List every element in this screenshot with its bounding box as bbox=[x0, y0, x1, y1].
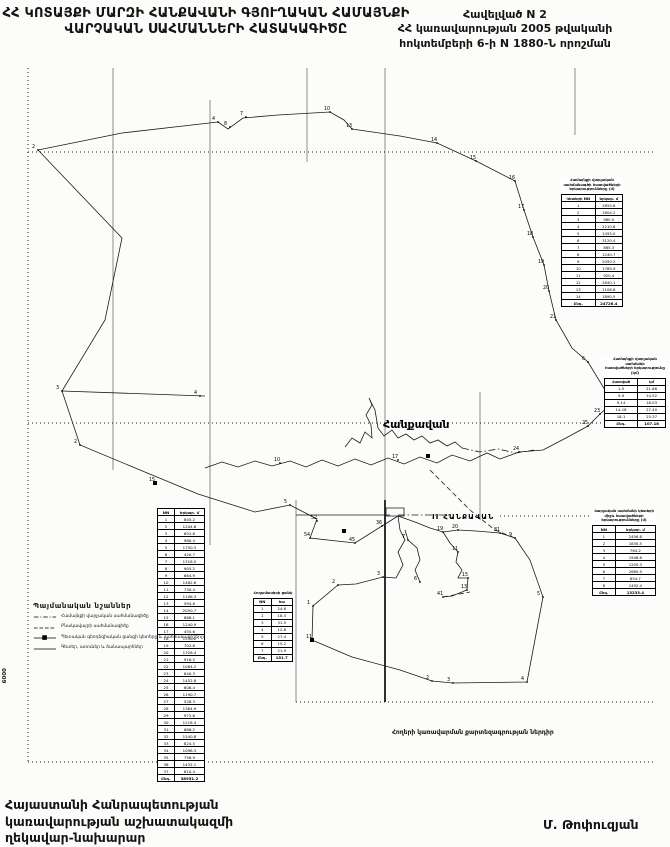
svg-text:10: 10 bbox=[274, 457, 280, 463]
table-row: 3764.2 bbox=[593, 547, 656, 554]
map-canvas: 2487101314151617181920216222325243421555… bbox=[0, 0, 670, 846]
table-row: 12456.8 bbox=[593, 533, 656, 540]
svg-text:20: 20 bbox=[543, 285, 549, 291]
table-row: 42210.8 bbox=[562, 223, 623, 230]
svg-text:23: 23 bbox=[594, 408, 600, 414]
svg-text:15: 15 bbox=[470, 155, 476, 161]
parcels-table: Հողամասերի ցանկNNհա124.6218.3331.5412.85… bbox=[253, 591, 293, 662]
table-caption: Վարչական սահմանի կետերիմիջև հատվածներիեր… bbox=[592, 509, 656, 523]
table-row: 281364.9 bbox=[158, 705, 205, 712]
table-caption: Հողամասերի ցանկ bbox=[253, 591, 293, 596]
table-row: 33824.5 bbox=[158, 740, 205, 747]
table-row: 1-521.86 bbox=[605, 385, 666, 392]
footer-line-1: Հայաստանի Հանրապետության bbox=[5, 797, 233, 814]
svg-text:13: 13 bbox=[461, 584, 467, 590]
svg-text:Հանքավան: Հանքավան bbox=[383, 418, 449, 431]
svg-text:4: 4 bbox=[194, 390, 197, 396]
table-row: 8905.2 bbox=[158, 565, 205, 572]
svg-text:81: 81 bbox=[494, 527, 500, 533]
table-total-row: Ընդ.107.18 bbox=[605, 420, 666, 427]
table-row: 21204.6 bbox=[158, 523, 205, 530]
svg-text:2: 2 bbox=[74, 439, 77, 445]
table-row: 11920.4 bbox=[562, 272, 623, 279]
svg-text:17: 17 bbox=[392, 454, 398, 460]
table-row: 92050.2 bbox=[562, 258, 623, 265]
table-row: 3652.8 bbox=[158, 530, 205, 537]
table-row: 122640.1 bbox=[562, 279, 623, 286]
svg-text:54: 54 bbox=[304, 532, 310, 538]
table-row: 221084.2 bbox=[158, 663, 205, 670]
table-row: 721.9 bbox=[254, 647, 293, 654]
svg-text:II ՀԱՆՔԱՎԱՆ: II ՀԱՆՔԱՎԱՆ bbox=[432, 513, 494, 521]
svg-text:17: 17 bbox=[518, 204, 524, 210]
legend-title: Պայմանական նշաններ bbox=[33, 602, 215, 610]
legend-symbol-icon bbox=[33, 624, 57, 632]
svg-text:24: 24 bbox=[513, 446, 519, 452]
table-row: 101785.9 bbox=[562, 265, 623, 272]
table-row: 261190.7 bbox=[158, 691, 205, 698]
table-row: 1845.2 bbox=[158, 516, 205, 523]
svg-text:1: 1 bbox=[307, 600, 310, 606]
svg-text:15: 15 bbox=[462, 572, 468, 578]
table-row: 21916.5 bbox=[158, 656, 205, 663]
table-row: 14-1827.40 bbox=[605, 406, 666, 413]
svg-text:20: 20 bbox=[452, 524, 458, 530]
table-row: 23640.3 bbox=[158, 670, 205, 677]
svg-text:4: 4 bbox=[212, 116, 215, 122]
svg-text:7: 7 bbox=[402, 534, 405, 540]
table-row: 341096.3 bbox=[158, 747, 205, 754]
table-row: 21604.2 bbox=[562, 209, 623, 216]
svg-text:16: 16 bbox=[509, 175, 515, 181]
svg-text:25: 25 bbox=[582, 420, 588, 426]
table-row: 31686.2 bbox=[158, 726, 205, 733]
legend: Պայմանական նշաններ Համայնքի վարչական սահ… bbox=[33, 602, 215, 655]
svg-text:6: 6 bbox=[414, 576, 417, 582]
table-row: 71318.5 bbox=[158, 558, 205, 565]
table-total-row: Ընդ.151.7 bbox=[254, 654, 293, 661]
legend-symbol-icon bbox=[33, 645, 57, 653]
legend-item: Պետական գեոդեզիական ցանցի կետերը և սահմա… bbox=[33, 634, 215, 642]
table-row: 51750.3 bbox=[158, 544, 205, 551]
svg-text:19: 19 bbox=[538, 259, 544, 265]
table-caption: Համայնքի վարչականսահմանագծի հատվածներիեր… bbox=[561, 178, 623, 192]
svg-text:41: 41 bbox=[437, 591, 443, 597]
footer-official-title: Հայաստանի Հանրապետության կառավարության ա… bbox=[5, 797, 233, 847]
svg-text:45: 45 bbox=[349, 537, 355, 543]
scale-label: 6000 bbox=[2, 668, 8, 683]
svg-text:3: 3 bbox=[56, 385, 59, 391]
table-row: 9664.9 bbox=[158, 572, 205, 579]
svg-text:8: 8 bbox=[224, 121, 227, 127]
table-row: 51455.0 bbox=[562, 230, 623, 237]
svg-text:6: 6 bbox=[582, 356, 585, 362]
table-row: 35758.9 bbox=[158, 754, 205, 761]
legend-symbol-icon bbox=[33, 634, 57, 642]
table-row: 18-125.37 bbox=[605, 413, 666, 420]
svg-text:13: 13 bbox=[346, 123, 352, 129]
table-total-row: Ընդ.24726.4 bbox=[562, 300, 623, 307]
table-row: 301218.4 bbox=[158, 719, 205, 726]
legend-item: Համայնքի վարչական սահմանագիծը bbox=[33, 613, 215, 621]
table-row: 27528.3 bbox=[158, 698, 205, 705]
table-row: 7854.7 bbox=[593, 575, 656, 582]
boundary-lengths-table: Համայնքի վարչականսահմանագծի հատվածներիեր… bbox=[561, 178, 623, 307]
table-row: 37610.4 bbox=[158, 768, 205, 775]
table-row: 124.6 bbox=[254, 605, 293, 612]
table-row: 615.2 bbox=[254, 640, 293, 647]
svg-text:5: 5 bbox=[537, 591, 540, 597]
legend-symbol-icon bbox=[33, 613, 57, 621]
svg-text:4: 4 bbox=[521, 676, 524, 682]
svg-text:52: 52 bbox=[311, 515, 317, 521]
svg-text:11: 11 bbox=[452, 546, 458, 552]
table-total-row: Ընդ.13233.4 bbox=[593, 589, 656, 596]
table-row: 51205.3 bbox=[593, 561, 656, 568]
table-row: 62680.9 bbox=[593, 568, 656, 575]
table-row: 321540.8 bbox=[158, 733, 205, 740]
segment-lengths-table: Համայնքի վարչական սահմանիհատվածների երկա… bbox=[604, 357, 666, 428]
svg-text:10: 10 bbox=[324, 106, 330, 112]
svg-text:2: 2 bbox=[32, 144, 35, 150]
boundary-points-table: Վարչական սահմանի կետերիմիջև հատվածներիեր… bbox=[592, 509, 656, 596]
table-row: 218.3 bbox=[254, 612, 293, 619]
table-row: 29972.6 bbox=[158, 712, 205, 719]
svg-text:19: 19 bbox=[437, 526, 443, 532]
svg-text:18: 18 bbox=[527, 231, 533, 237]
svg-text:3: 3 bbox=[377, 571, 380, 577]
data-table: Հատվածկմ1-521.865-914.529-1418.0314-1827… bbox=[604, 378, 666, 428]
table-row: 101482.6 bbox=[158, 579, 205, 586]
table-row: 41948.6 bbox=[593, 554, 656, 561]
table-row: 25806.4 bbox=[158, 684, 205, 691]
table-row: 412.8 bbox=[254, 626, 293, 633]
legend-item: Գետեր, առուներ և ճանապարհներ bbox=[33, 645, 215, 653]
legend-items: Համայնքի վարչական սահմանագիծըԲնակավայրի … bbox=[33, 613, 215, 653]
footer-line-2: կառավարության աշխատակազմի bbox=[5, 814, 233, 831]
table-row: 81492.4 bbox=[593, 582, 656, 589]
svg-text:5: 5 bbox=[284, 499, 287, 505]
table-row: 331.5 bbox=[254, 619, 293, 626]
table-row: 7865.3 bbox=[562, 244, 623, 251]
table-row: 4980.4 bbox=[158, 537, 205, 544]
svg-text:2: 2 bbox=[426, 675, 429, 681]
table-row: 81240.7 bbox=[562, 251, 623, 258]
table-total-row: Ընդ.38951.2 bbox=[158, 775, 205, 782]
svg-text:2: 2 bbox=[332, 579, 335, 585]
table-row: 9-1418.03 bbox=[605, 399, 666, 406]
svg-text:7: 7 bbox=[240, 111, 243, 117]
svg-text:14: 14 bbox=[431, 137, 437, 143]
table-row: 5-914.52 bbox=[605, 392, 666, 399]
table-row: 131106.8 bbox=[562, 286, 623, 293]
legend-item: Բնակավայրի սահմանագիծը bbox=[33, 624, 215, 632]
table-caption: Համայնքի վարչական սահմանիհատվածների երկա… bbox=[604, 357, 666, 376]
table-row: 241452.8 bbox=[158, 677, 205, 684]
table-row: 6420.7 bbox=[158, 551, 205, 558]
table-row: 121106.3 bbox=[158, 593, 205, 600]
table-row: 3980.5 bbox=[562, 216, 623, 223]
data-table: Կետերի NNԵրկար. մ12855.621604.23980.5422… bbox=[561, 194, 623, 307]
svg-text:9: 9 bbox=[509, 532, 512, 538]
table-row: 361432.1 bbox=[158, 761, 205, 768]
map-note: Հողերի կառավարման քարտեզագրության ներդիր bbox=[392, 729, 554, 736]
table-row: 141890.5 bbox=[562, 293, 623, 300]
table-row: 527.4 bbox=[254, 633, 293, 640]
svg-text:36: 36 bbox=[376, 520, 382, 526]
data-table: NNհա124.6218.3331.5412.8527.4615.2721.9Ը… bbox=[253, 598, 293, 662]
footer-line-3: ղեկավար-նախարար bbox=[5, 830, 233, 847]
table-row: 63120.4 bbox=[562, 237, 623, 244]
table-row: 11730.4 bbox=[158, 586, 205, 593]
table-row: 21830.5 bbox=[593, 540, 656, 547]
table-row: 12855.6 bbox=[562, 202, 623, 209]
data-table: NNԵրկար. մ12456.821830.53764.241948.6512… bbox=[592, 525, 656, 596]
signature-name: Մ. Թոփուզյան bbox=[543, 817, 639, 832]
svg-text:21: 21 bbox=[550, 314, 556, 320]
svg-text:3: 3 bbox=[447, 677, 450, 683]
